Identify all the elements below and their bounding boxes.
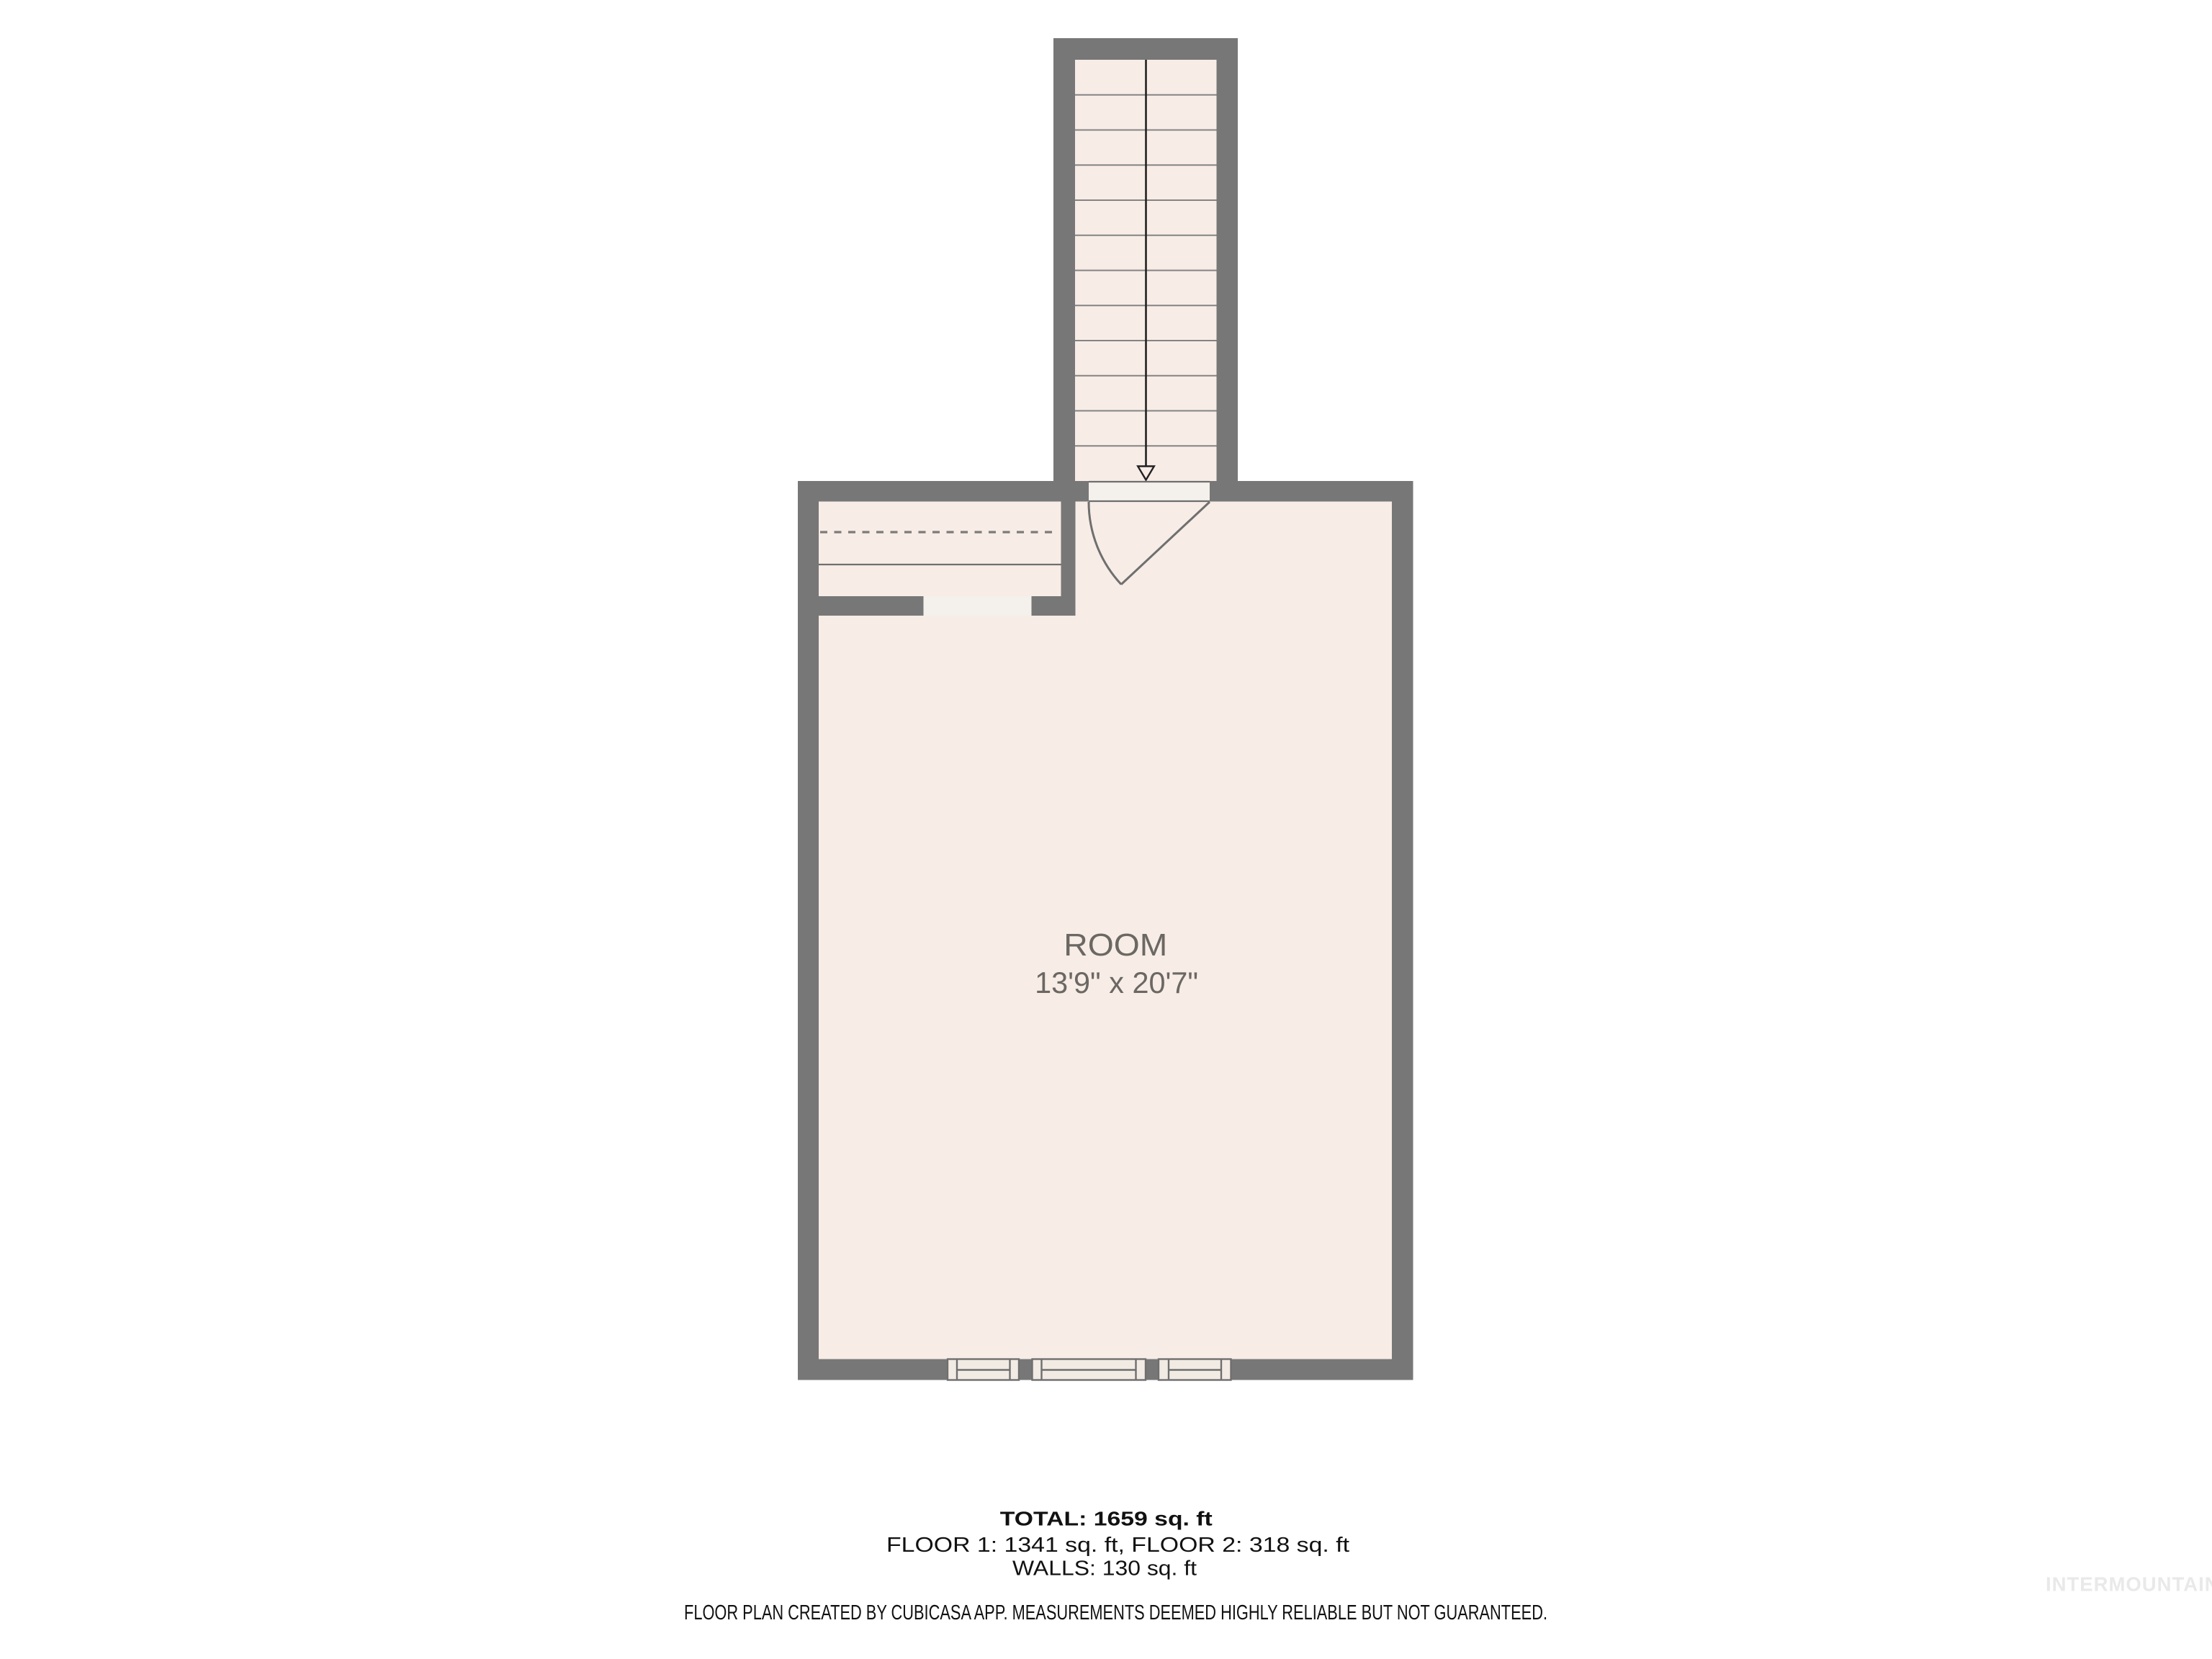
svg-text:WALLS: 130 sq. ft: WALLS: 130 sq. ft — [1012, 1557, 1197, 1581]
svg-text:FLOOR PLAN CREATED BY CUBICASA: FLOOR PLAN CREATED BY CUBICASA APP. MEAS… — [684, 1601, 1547, 1624]
svg-text:13'9" x 20'7": 13'9" x 20'7" — [1035, 966, 1198, 999]
svg-text:ROOM: ROOM — [1064, 927, 1167, 963]
svg-text:FLOOR 1: 1341 sq. ft, FLOOR 2:: FLOOR 1: 1341 sq. ft, FLOOR 2: 318 sq. f… — [886, 1534, 1349, 1557]
svg-text:INTERMOUNTAIN: INTERMOUNTAIN — [2046, 1573, 2212, 1596]
svg-text:TOTAL: 1659 sq. ft: TOTAL: 1659 sq. ft — [1000, 1508, 1213, 1530]
